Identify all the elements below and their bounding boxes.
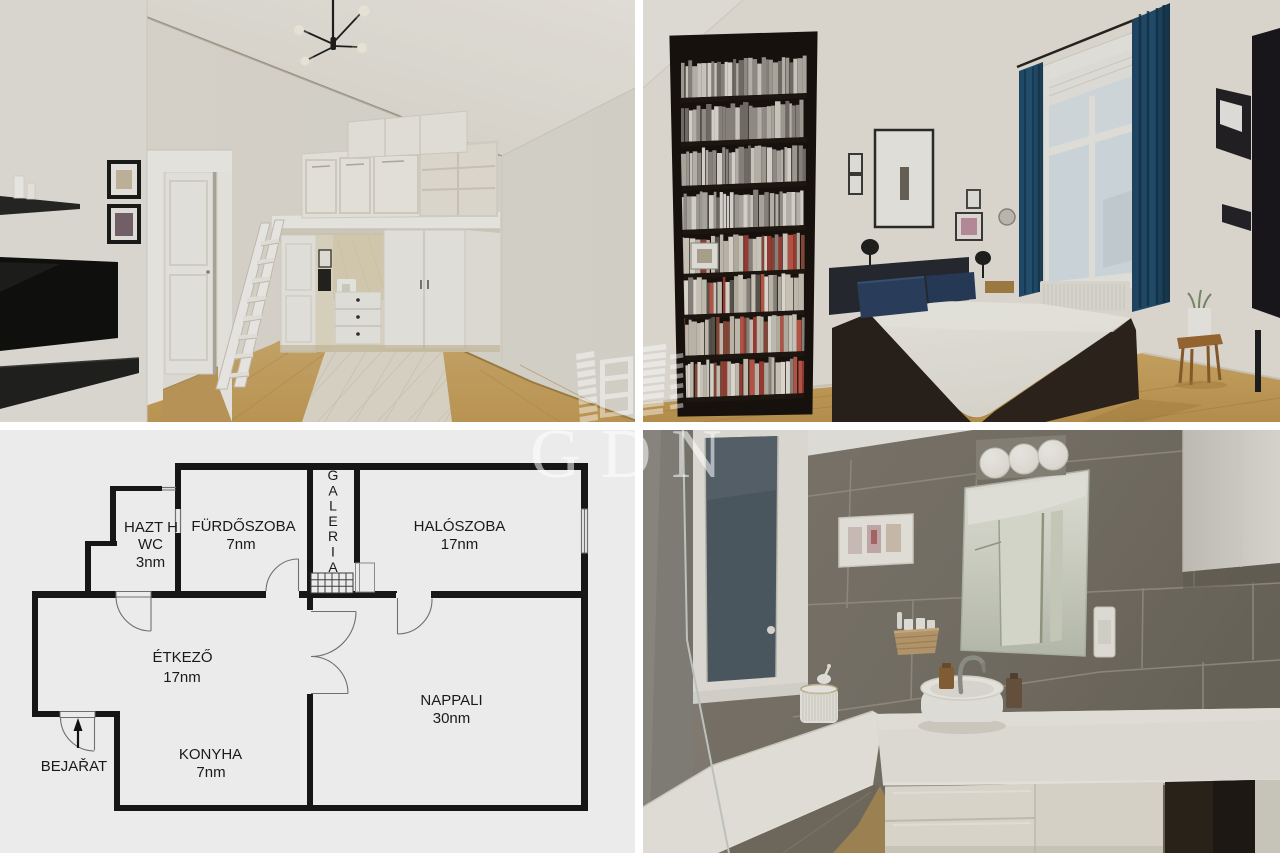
svg-text:17nm: 17nm — [163, 669, 201, 686]
svg-text:7nm: 7nm — [226, 536, 255, 553]
svg-text:3nm: 3nm — [136, 554, 165, 571]
svg-text:30nm: 30nm — [433, 710, 471, 727]
svg-text:E: E — [328, 513, 337, 529]
svg-text:FÜRDŐSZOBA: FÜRDŐSZOBA — [191, 517, 295, 535]
svg-text:ÉTKEZŐ: ÉTKEZŐ — [152, 649, 212, 666]
svg-text:I: I — [331, 544, 335, 560]
svg-text:BEJAŘAT: BEJAŘAT — [41, 758, 107, 775]
svg-text:A: A — [328, 559, 338, 575]
svg-text:KONYHA: KONYHA — [179, 746, 242, 763]
svg-text:17nm: 17nm — [441, 536, 479, 553]
svg-text:WC: WC — [138, 536, 163, 553]
svg-text:NAPPALI: NAPPALI — [420, 692, 482, 709]
svg-text:A: A — [328, 482, 338, 498]
svg-text:7nm: 7nm — [196, 764, 225, 781]
svg-text:L: L — [329, 498, 337, 514]
svg-text:R: R — [328, 528, 338, 544]
svg-text:G: G — [328, 467, 339, 483]
svg-text:HAZT H: HAZT H — [124, 519, 178, 536]
svg-text:HALÓSZOBA: HALÓSZOBA — [414, 518, 506, 535]
